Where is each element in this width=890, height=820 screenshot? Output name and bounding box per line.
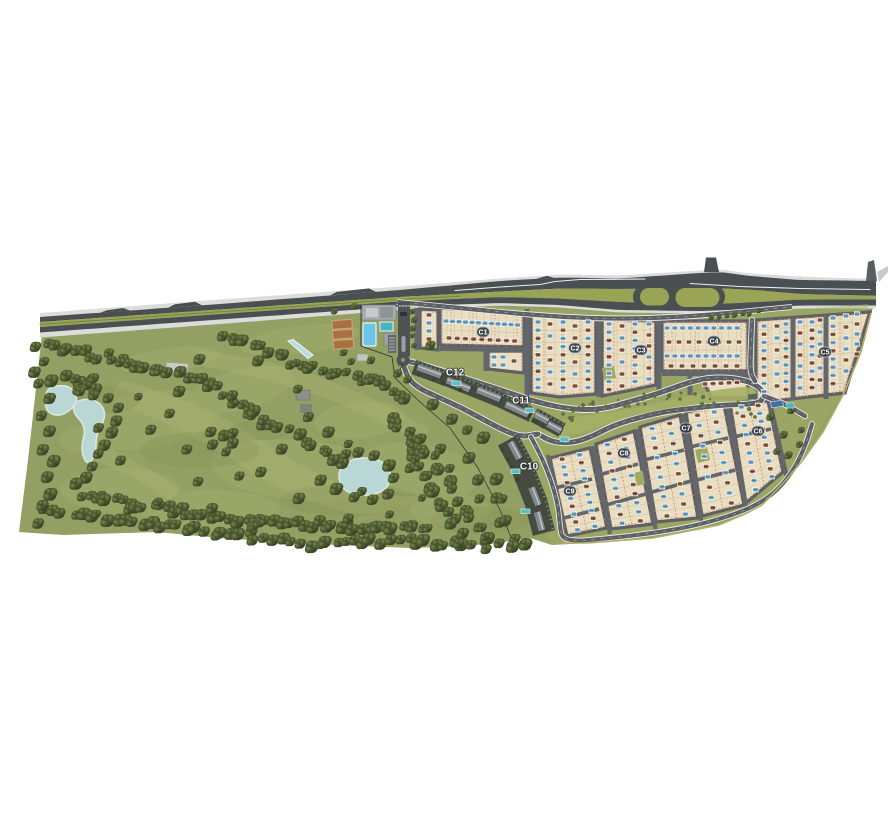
svg-text:C11: C11 xyxy=(512,396,530,407)
svg-text:C4: C4 xyxy=(710,339,719,346)
svg-text:C10: C10 xyxy=(520,462,539,473)
svg-text:C1: C1 xyxy=(479,330,488,337)
svg-text:C3: C3 xyxy=(637,348,646,355)
svg-text:C6: C6 xyxy=(754,429,763,436)
svg-text:C8: C8 xyxy=(620,451,629,458)
svg-text:C12: C12 xyxy=(446,368,465,379)
svg-text:C5: C5 xyxy=(821,350,830,357)
svg-text:C7: C7 xyxy=(682,426,691,433)
svg-text:C2: C2 xyxy=(571,346,580,353)
svg-text:C9: C9 xyxy=(566,489,575,496)
